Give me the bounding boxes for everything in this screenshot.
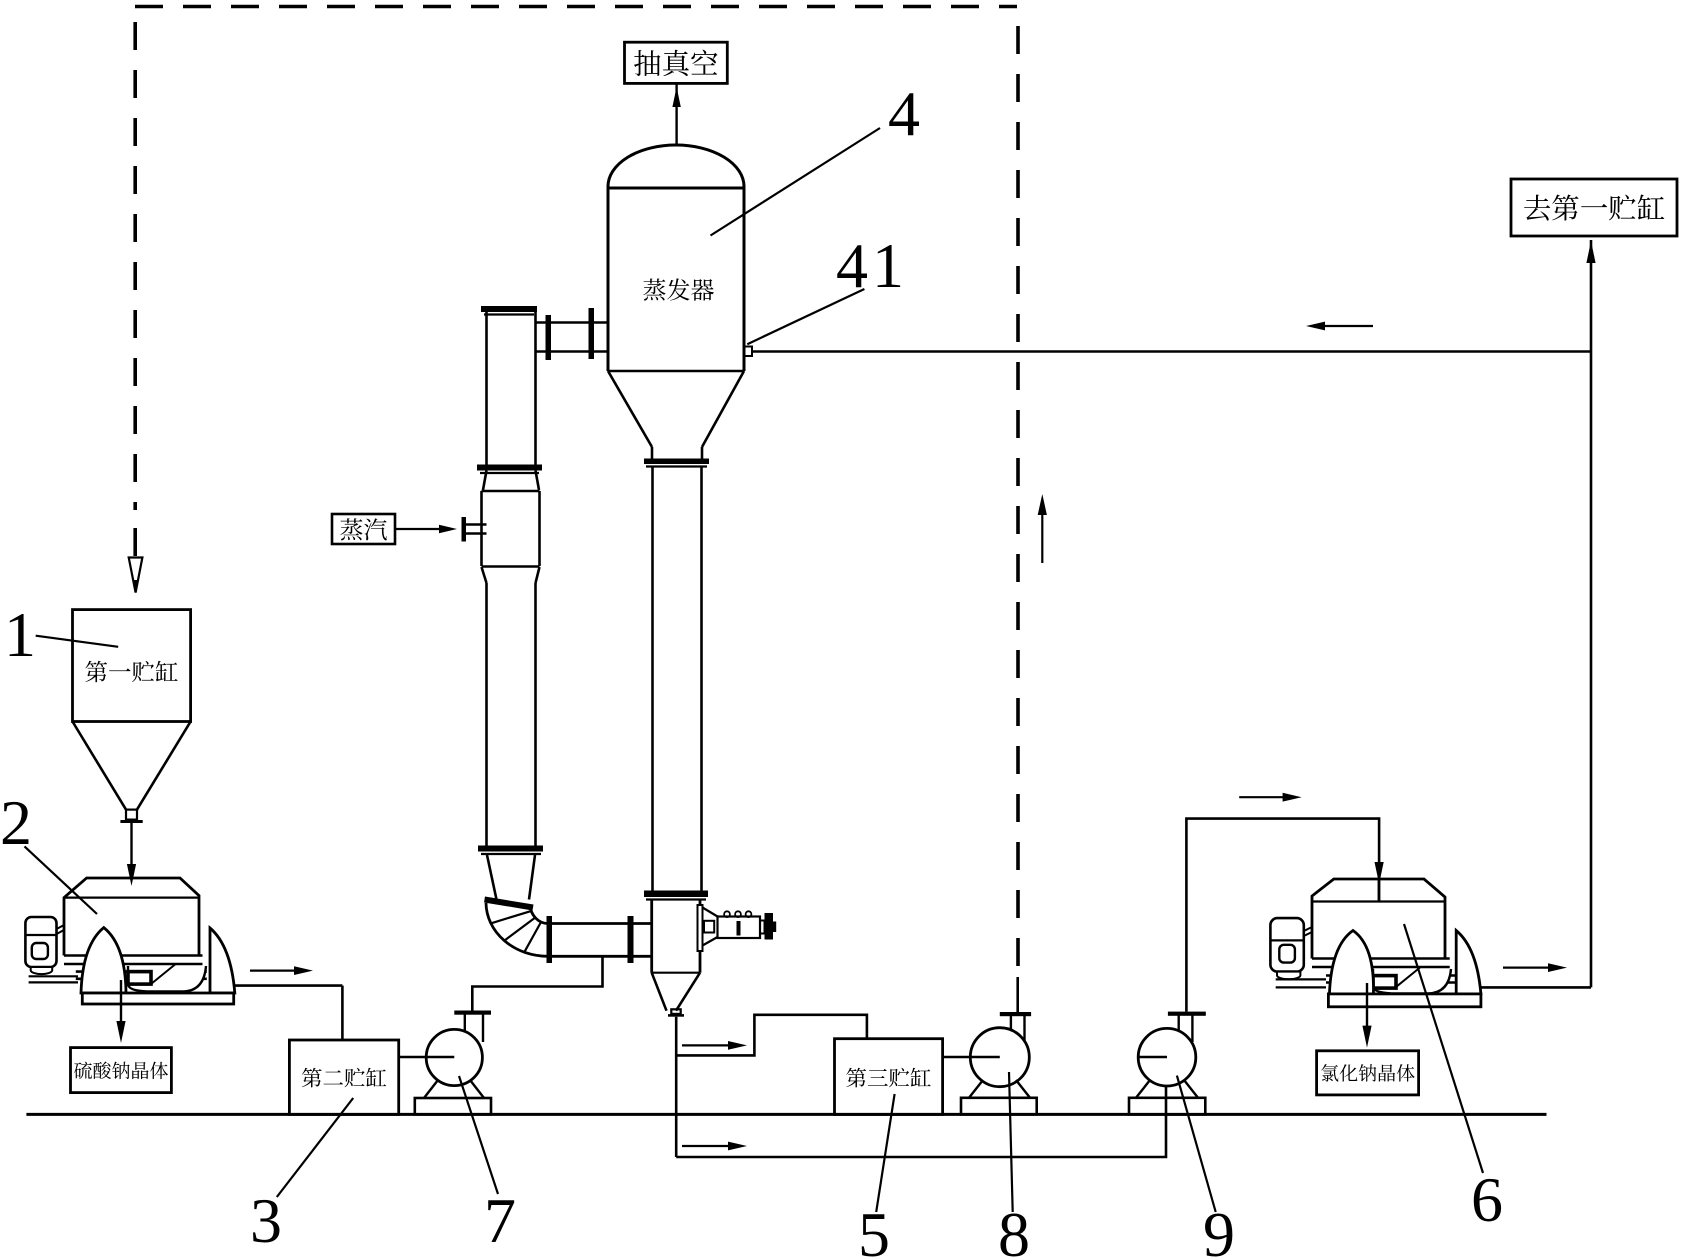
svg-text:41: 41 — [836, 230, 908, 301]
svg-text:4: 4 — [888, 78, 920, 149]
svg-text:7: 7 — [484, 1185, 516, 1256]
svg-text:5: 5 — [858, 1199, 890, 1257]
svg-text:8: 8 — [998, 1199, 1030, 1257]
svg-text:1: 1 — [4, 599, 36, 670]
svg-text:9: 9 — [1203, 1199, 1235, 1257]
svg-text:6: 6 — [1471, 1164, 1503, 1235]
